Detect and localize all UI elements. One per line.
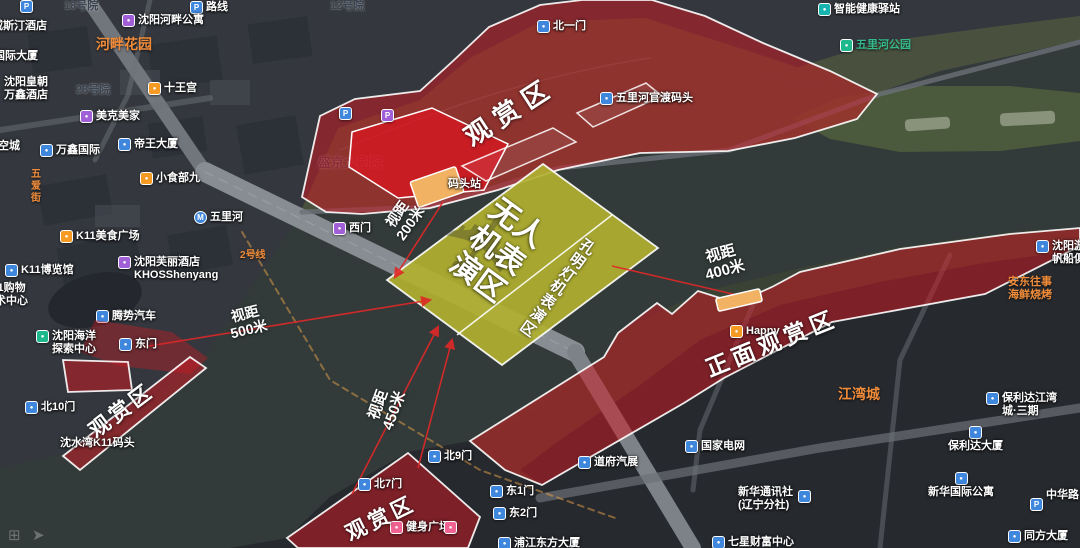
blue-icon: ●	[685, 440, 698, 453]
poi-沈阳河畔公寓[interactable]: ●沈阳河畔公寓	[122, 14, 204, 27]
poi-K11博览馆[interactable]: ●K11博览馆	[5, 264, 74, 277]
blue-icon: ●	[969, 426, 982, 439]
poi-label: 中华路	[1046, 489, 1079, 502]
poi-label: Happy	[746, 325, 780, 338]
blue-icon: ●	[537, 20, 550, 33]
map-canvas[interactable]: ●腾势汽车盛京大剧院 ✈ P18号院P路线12号院●沈阳河畔公寓河畔花园威斯汀酒…	[0, 0, 1080, 548]
parking-icon: P	[339, 107, 352, 120]
parking-icon: P	[20, 0, 33, 13]
poi-label: 北10门	[41, 401, 75, 414]
poi-label: 沈阳芙丽酒店KHOSShenyang	[134, 256, 218, 281]
poi-北9门[interactable]: ●北9门	[428, 450, 472, 463]
poi-12号院[interactable]: 12号院	[330, 0, 364, 13]
poi-中华路[interactable]: 中华路	[1046, 489, 1079, 502]
poi-同方大厦[interactable]: ●同方大厦	[1008, 530, 1068, 543]
poi-东2门[interactable]: ●东2门	[493, 507, 537, 520]
pink-icon: ●	[444, 521, 457, 534]
poi-label: 道府汽展	[594, 456, 638, 469]
blue-icon: ●	[358, 478, 371, 491]
poi-label: 东1门	[506, 485, 534, 498]
pink-icon: ●	[390, 521, 403, 534]
blue-icon: ●	[712, 536, 725, 548]
poi-保利达江湾[interactable]: ●保利达江湾城·三期	[986, 392, 1057, 417]
poi-label: 江湾城	[838, 386, 880, 402]
poi-label: 沈水湾K11码头	[60, 437, 135, 450]
poi-东门[interactable]: ●东门	[119, 338, 157, 351]
poi-18号院[interactable]: 18号院	[64, 0, 98, 13]
poi-label: 帝王大厦	[134, 138, 178, 151]
poi-保利达大厦[interactable]: ●保利达大厦	[948, 426, 1003, 453]
poi-label: 东门	[135, 338, 157, 351]
poi-智能健康驿站[interactable]: ●智能健康驿站	[818, 3, 900, 16]
poi-浦江东方大厦[interactable]: ●浦江东方大厦	[498, 537, 580, 548]
poi-健身广场[interactable]: ●健身广场	[390, 521, 450, 534]
poi-西门[interactable]: ●西门	[333, 222, 371, 235]
blue-icon: ●	[955, 472, 968, 485]
blue-icon: ●	[25, 401, 38, 414]
poi-marker[interactable]: P	[381, 109, 394, 122]
poi-label: 北7门	[374, 478, 402, 491]
blue-icon: ●	[493, 507, 506, 520]
parking-icon: P	[190, 1, 203, 14]
poi-沈阳游艇[interactable]: ●沈阳游艇帆船俱乐部	[1036, 240, 1080, 265]
green-icon: ●	[840, 39, 853, 52]
blue-icon: ●	[490, 485, 503, 498]
poi-沈阳芙丽酒店[interactable]: ●沈阳芙丽酒店KHOSShenyang	[118, 256, 218, 281]
poi-沈水湾K11码头[interactable]: 沈水湾K11码头	[60, 437, 135, 450]
orange-icon: ●	[730, 325, 743, 338]
poi-label: 23号院	[76, 84, 110, 97]
blue-icon: ●	[498, 537, 511, 548]
poi-国家电网[interactable]: ●国家电网	[685, 440, 745, 453]
poi-label: 新华国际公寓	[928, 486, 994, 499]
blue-icon: ●	[40, 144, 53, 157]
blue-icon: ●	[1008, 530, 1021, 543]
purple-icon: ●	[333, 222, 346, 235]
sight-line	[418, 340, 452, 468]
teal-icon: ●	[818, 3, 831, 16]
blue-icon: ●	[119, 338, 132, 351]
poi-国际大厦[interactable]: 国际大厦	[0, 50, 38, 63]
poi-label: 万鑫国际	[56, 144, 100, 157]
parking-icon: P	[1030, 498, 1043, 511]
poi-label: 小食部九	[156, 172, 200, 185]
poi-东1门[interactable]: ●东1门	[490, 485, 534, 498]
poi-label: 河畔花园	[96, 36, 152, 52]
poi-marker[interactable]: ●	[798, 490, 811, 503]
blue-icon: ●	[118, 138, 131, 151]
poi-label: 安东往事海鲜烧烤	[1008, 276, 1052, 301]
poi-label: 保利达江湾城·三期	[1002, 392, 1057, 417]
purple-icon: ●	[80, 110, 93, 123]
blue-icon: ●	[798, 490, 811, 503]
poi-五爱街[interactable]: 五爱街	[28, 168, 40, 204]
poi-label: K11购物艺术中心	[0, 282, 28, 307]
poi-2号线[interactable]: 2号线	[240, 250, 266, 262]
poi-空城[interactable]: 空城	[0, 140, 20, 153]
blue-icon: ●	[986, 392, 999, 405]
poi-23号院[interactable]: 23号院	[76, 84, 110, 97]
purple-icon: ●	[122, 14, 135, 27]
poi-十王宫[interactable]: ●十王宫	[148, 82, 197, 95]
poi-label: 国家电网	[701, 440, 745, 453]
poi-Happy[interactable]: ●Happy	[730, 325, 780, 338]
poi-帝王大厦[interactable]: ●帝王大厦	[118, 138, 178, 151]
poi-marker[interactable]: P	[20, 0, 33, 13]
poi-路线[interactable]: P路线	[190, 1, 228, 14]
poi-北7门[interactable]: ●北7门	[358, 478, 402, 491]
blue-icon: ●	[428, 450, 441, 463]
poi-label: 五爱街	[28, 168, 40, 204]
poi-小食部九[interactable]: ●小食部九	[140, 172, 200, 185]
zone-west-shore-quad	[63, 360, 132, 392]
poi-label: 沈阳游艇帆船俱乐部	[1052, 240, 1080, 265]
poi-label: 浦江东方大厦	[514, 537, 580, 548]
poi-七星财富中心[interactable]: ●七星财富中心	[712, 536, 794, 548]
poi-新华通讯社[interactable]: 新华通讯社(辽宁分社)	[738, 486, 793, 511]
poi-美克美家[interactable]: ●美克美家	[80, 110, 140, 123]
poi-label: 智能健康驿站	[834, 3, 900, 16]
poi-label: 北一门	[553, 20, 586, 33]
poi-label: K11美食广场	[76, 230, 140, 243]
sight-line	[612, 266, 737, 295]
blue-icon: ●	[5, 264, 18, 277]
poi-K11购物[interactable]: K11购物艺术中心	[0, 282, 28, 307]
poi-label: 12号院	[330, 0, 364, 13]
poi-label: 七星财富中心	[728, 536, 794, 548]
poi-北一门[interactable]: ●北一门	[537, 20, 586, 33]
poi-沈阳皇朝[interactable]: 沈阳皇朝万鑫酒店	[4, 76, 48, 101]
poi-道府汽展[interactable]: ●道府汽展	[578, 456, 638, 469]
poi-label: 威斯汀酒店	[0, 20, 47, 33]
poi-label: 18号院	[64, 0, 98, 13]
poi-marker[interactable]: P	[1030, 498, 1043, 511]
poi-五里河[interactable]: M五里河	[194, 211, 243, 224]
poi-label: K11博览馆	[21, 264, 74, 277]
poi-label: 十王宫	[164, 82, 197, 95]
poi-码头站[interactable]: 码头站	[448, 178, 481, 191]
poi-威斯汀酒店[interactable]: 威斯汀酒店	[0, 20, 47, 33]
poi-label: 五里河官渡码头	[616, 92, 693, 105]
green-icon: ●	[36, 330, 49, 343]
poi-label: 保利达大厦	[948, 440, 1003, 453]
poi-河畔花园[interactable]: 河畔花园	[96, 36, 152, 52]
poi-label: 东2门	[509, 507, 537, 520]
blue-icon: ●	[1036, 240, 1049, 253]
poi-北10门[interactable]: ●北10门	[25, 401, 75, 414]
poi-五里河公园[interactable]: ●五里河公园	[840, 39, 911, 52]
blue-icon: ●	[578, 456, 591, 469]
poi-label: 码头站	[448, 178, 481, 191]
purple-icon: ●	[118, 256, 131, 269]
blue-icon: ●	[600, 92, 613, 105]
poi-新华国际公寓[interactable]: ●新华国际公寓	[928, 472, 994, 499]
poi-label: 五里河	[210, 211, 243, 224]
poi-label: 国际大厦	[0, 50, 38, 63]
poi-label: 沈阳海洋探索中心	[52, 330, 96, 355]
orange-icon: ●	[148, 82, 161, 95]
poi-label: 沈阳河畔公寓	[138, 14, 204, 27]
poi-label: 同方大厦	[1024, 530, 1068, 543]
poi-label: 沈阳皇朝万鑫酒店	[4, 76, 48, 101]
poi-安东往事[interactable]: 安东往事海鲜烧烤	[1008, 276, 1052, 301]
metro-icon: M	[194, 211, 207, 224]
poi-五里河官渡码头[interactable]: ●五里河官渡码头	[600, 92, 693, 105]
poi-label: 路线	[206, 1, 228, 14]
poi-K11美食广场[interactable]: ●K11美食广场	[60, 230, 140, 243]
poi-label: 北9门	[444, 450, 472, 463]
poi-label: 2号线	[240, 250, 266, 262]
poi-label: 西门	[349, 222, 371, 235]
sight-line	[143, 300, 430, 347]
poi-万鑫国际[interactable]: ●万鑫国际	[40, 144, 100, 157]
orange-icon: ●	[140, 172, 153, 185]
poi-label: 新华通讯社(辽宁分社)	[738, 486, 793, 511]
poi-label: 五里河公园	[856, 39, 911, 52]
poi-江湾城[interactable]: 江湾城	[838, 386, 880, 402]
orange-icon: ●	[60, 230, 73, 243]
poi-marker[interactable]: ●	[444, 521, 457, 534]
poi-沈阳海洋[interactable]: ●沈阳海洋探索中心	[36, 330, 96, 355]
parking-purple-icon: P	[381, 109, 394, 122]
poi-marker[interactable]: P	[339, 107, 352, 120]
poi-label: 美克美家	[96, 110, 140, 123]
poi-label: 空城	[0, 140, 20, 153]
